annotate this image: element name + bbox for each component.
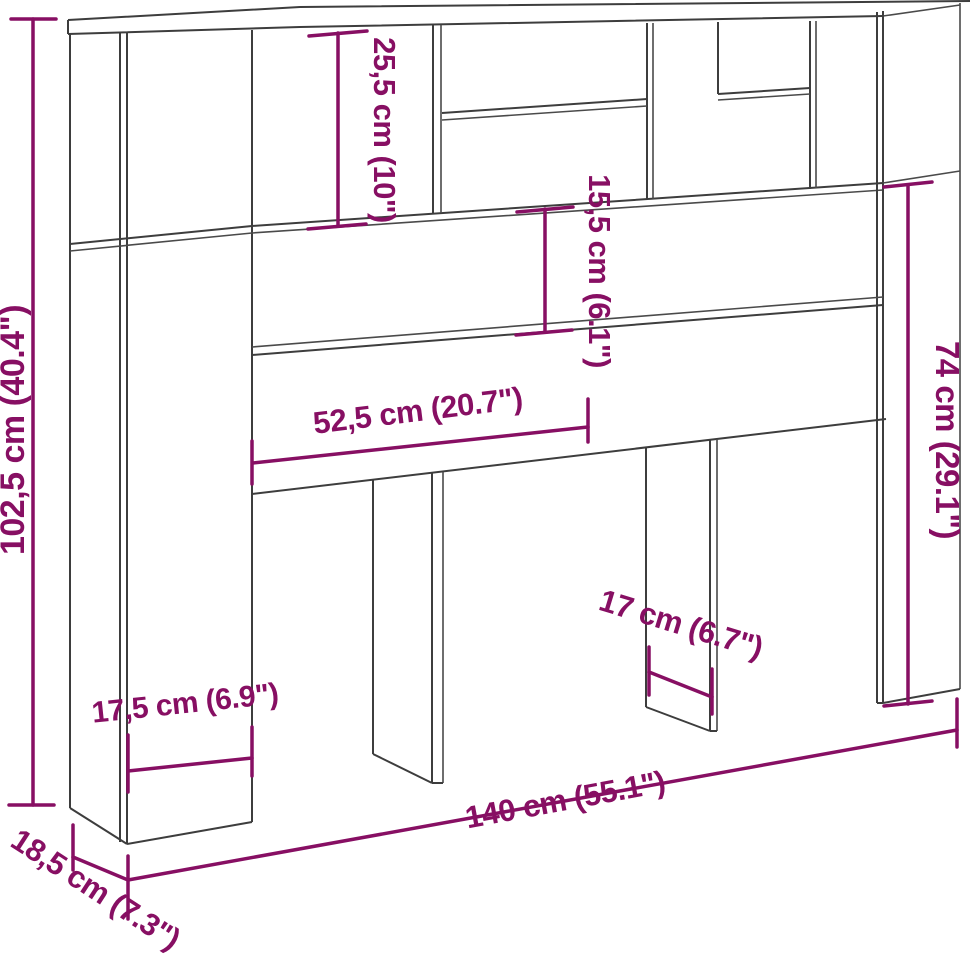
dimension-left-column-width: 17,5 cm (6.9") [90, 677, 280, 792]
dimension-top-shelf-height: 25,5 cm (10") [308, 31, 402, 229]
dimension-label-top-shelf-height: 25,5 cm (10") [367, 37, 402, 223]
dimension-shelf-span-width: 52,5 cm (20.7") [252, 380, 588, 484]
middle-right-leg [646, 439, 717, 731]
dimension-total-height: 102,5 cm (40.4") [0, 19, 56, 805]
dimension-label-total-depth: 18,5 cm (7.3") [5, 822, 187, 957]
long-shelf [70, 183, 883, 251]
headboard-top-panel [68, 1, 970, 34]
dimension-label-lower-side-height: 74 cm (29.1") [929, 341, 966, 539]
dimension-label-panel-board-height: 15,5 cm (6.1") [582, 174, 617, 368]
top-cubby-dividers [433, 21, 816, 214]
dimension-label-total-width: 140 cm (55.1") [462, 764, 667, 835]
dimension-label-foot-depth: 17 cm (6.7") [595, 583, 767, 666]
dimension-diagram-canvas: 102,5 cm (40.4") 25,5 cm (10") 15,5 cm (… [0, 0, 970, 970]
middle-left-leg [373, 472, 443, 783]
headboard-line-drawing: 102,5 cm (40.4") 25,5 cm (10") 15,5 cm (… [0, 0, 970, 970]
dimension-label-total-height: 102,5 cm (40.4") [0, 305, 32, 555]
dimension-total-depth: 18,5 cm (7.3") [5, 822, 187, 957]
back-panel-boards [252, 297, 886, 494]
dimension-lower-side-height: 74 cm (29.1") [884, 182, 966, 706]
dimension-foot-depth: 17 cm (6.7") [595, 583, 767, 714]
dimension-panel-board-height: 15,5 cm (6.1") [516, 174, 617, 368]
dimension-label-shelf-span-width: 52,5 cm (20.7") [311, 380, 524, 440]
